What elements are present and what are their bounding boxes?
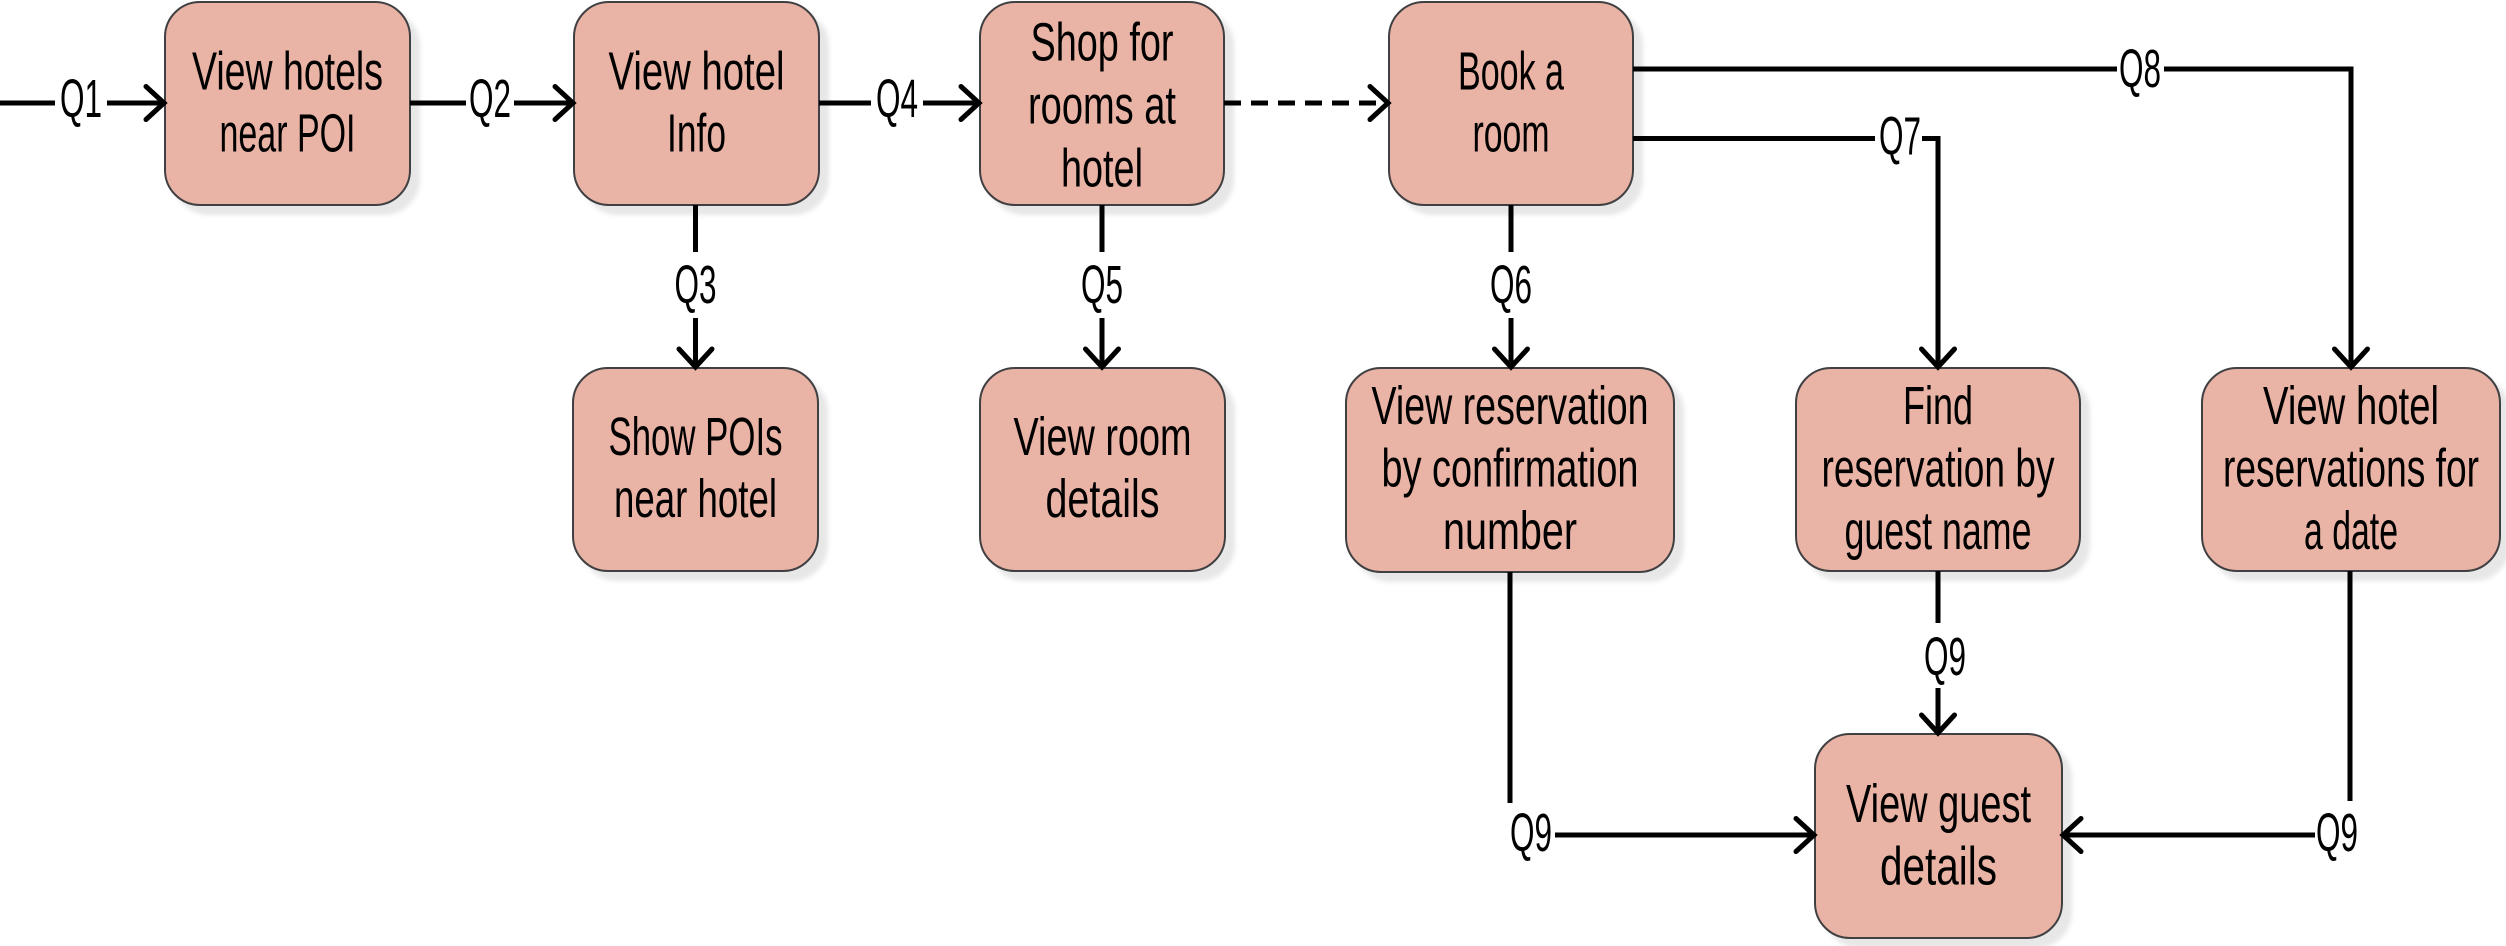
svg-text:Info: Info <box>667 104 726 164</box>
svg-text:hotel: hotel <box>1061 139 1143 199</box>
svg-text:near POI: near POI <box>220 104 356 164</box>
svg-text:details: details <box>1880 837 1997 897</box>
svg-text:Q6: Q6 <box>1490 255 1532 315</box>
svg-text:Q9: Q9 <box>1924 627 1966 687</box>
svg-text:View reservation: View reservation <box>1372 376 1649 436</box>
svg-text:guest name: guest name <box>1845 501 2032 561</box>
svg-text:View hotel: View hotel <box>2263 376 2439 436</box>
svg-text:View room: View room <box>1014 407 1192 467</box>
svg-text:number: number <box>1443 501 1577 561</box>
svg-text:Q5: Q5 <box>1081 255 1123 315</box>
svg-text:Q4: Q4 <box>876 69 918 129</box>
svg-text:View hotel: View hotel <box>609 42 785 102</box>
svg-text:Q9: Q9 <box>1510 803 1552 863</box>
svg-text:reservations for: reservations for <box>2223 439 2479 499</box>
svg-text:Q7: Q7 <box>1879 107 1921 167</box>
svg-text:Book a: Book a <box>1458 42 1565 102</box>
svg-text:reservation by: reservation by <box>1822 439 2055 499</box>
svg-text:Shop for: Shop for <box>1031 13 1174 73</box>
svg-text:View guest: View guest <box>1846 774 2031 834</box>
svg-text:by confirmation: by confirmation <box>1382 439 1639 499</box>
svg-text:Find: Find <box>1903 376 1973 436</box>
svg-text:room: room <box>1473 104 1550 164</box>
svg-text:near hotel: near hotel <box>614 469 777 529</box>
svg-text:Show POIs: Show POIs <box>609 407 783 467</box>
svg-text:View hotels: View hotels <box>192 42 383 102</box>
svg-text:Q2: Q2 <box>469 69 511 129</box>
svg-text:Q3: Q3 <box>675 255 717 315</box>
svg-text:details: details <box>1046 469 1160 529</box>
svg-text:rooms at: rooms at <box>1028 76 1176 136</box>
svg-text:Q1: Q1 <box>60 69 102 129</box>
svg-text:Q8: Q8 <box>2119 39 2161 99</box>
svg-text:a date: a date <box>2304 501 2398 561</box>
svg-text:Q9: Q9 <box>2316 803 2358 863</box>
